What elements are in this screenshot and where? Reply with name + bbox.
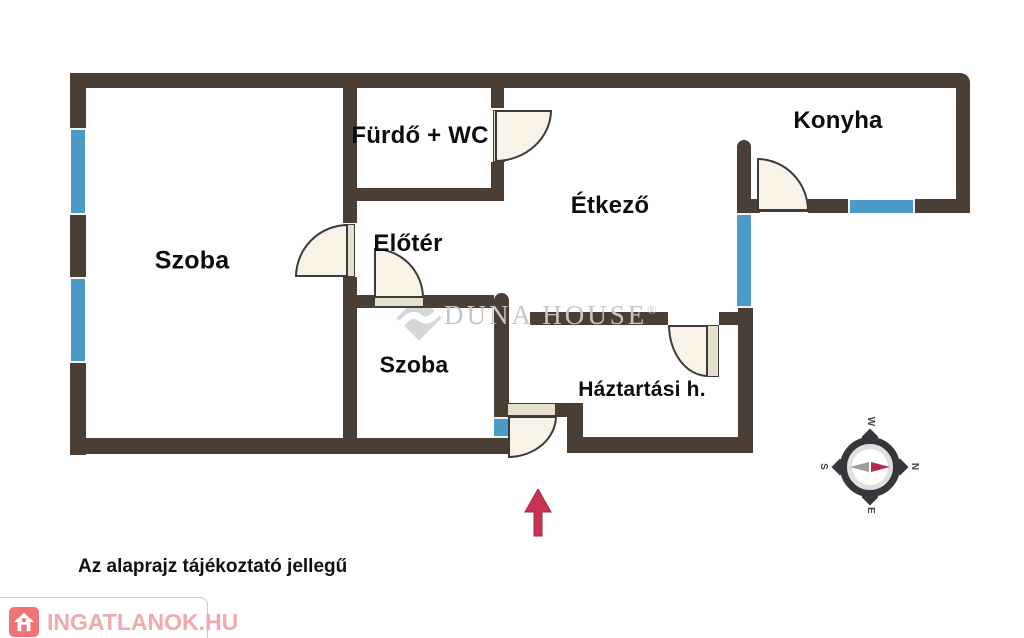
- compass-rose: W N E S: [826, 423, 914, 511]
- door-arc: [757, 158, 809, 211]
- door-arc: [295, 224, 348, 277]
- window-segment: [494, 417, 508, 438]
- wall-segment: [915, 199, 970, 213]
- wall-segment: [719, 312, 753, 325]
- door-arc: [508, 416, 557, 458]
- room-label-szoba: Szoba: [380, 352, 449, 379]
- wall-segment: [491, 162, 504, 201]
- window-segment: [71, 277, 85, 363]
- wall-segment: [738, 308, 753, 453]
- logo-text: INGATLANOK.HU: [47, 609, 238, 636]
- wall-segment: [70, 73, 970, 88]
- ingatlanok-logo[interactable]: INGATLANOK.HU: [0, 597, 208, 638]
- door-slab: [707, 325, 719, 377]
- registered-mark: ®: [647, 303, 656, 317]
- compass-label-w: W: [865, 417, 876, 426]
- compass-label-n: N: [909, 463, 920, 470]
- door-arc: [495, 110, 552, 162]
- room-label--tkez-: Étkező: [571, 192, 650, 220]
- room-label-h-ztart-si-h-: Háztartási h.: [578, 378, 705, 402]
- window-segment: [71, 128, 85, 215]
- floorplan-canvas: SzobaFürdő + WCElőtérÉtkezőKonyhaSzobaHá…: [0, 0, 1024, 638]
- wall-segment: [343, 277, 357, 438]
- wall-segment: [491, 88, 504, 108]
- compass-needle-icon: [848, 459, 892, 475]
- window-segment: [737, 213, 751, 308]
- wall-segment: [70, 438, 508, 454]
- room-label-konyha: Konyha: [793, 107, 882, 135]
- room-label-el-t-r: Előtér: [373, 230, 442, 258]
- window-segment: [848, 200, 915, 213]
- house-icon: [9, 607, 39, 637]
- door-slab: [507, 403, 556, 416]
- wall-segment: [70, 215, 86, 277]
- disclaimer-text: Az alaprajz tájékoztató jellegű: [78, 556, 347, 578]
- compass-label-e: E: [865, 507, 876, 514]
- wall-segment: [567, 437, 753, 453]
- door-arc: [668, 325, 708, 377]
- dunahouse-watermark: DUNA HOUSE®: [444, 300, 656, 331]
- wall-segment: [956, 73, 970, 213]
- wall-segment: [343, 188, 504, 201]
- wall-segment: [808, 199, 848, 213]
- room-label-szoba: Szoba: [155, 247, 230, 276]
- wall-segment: [70, 73, 86, 128]
- wall-segment: [343, 88, 357, 223]
- compass-label-s: S: [818, 463, 829, 470]
- room-label-f-rd-wc: Fürdő + WC: [351, 122, 488, 150]
- entrance-arrow-icon: [524, 489, 552, 542]
